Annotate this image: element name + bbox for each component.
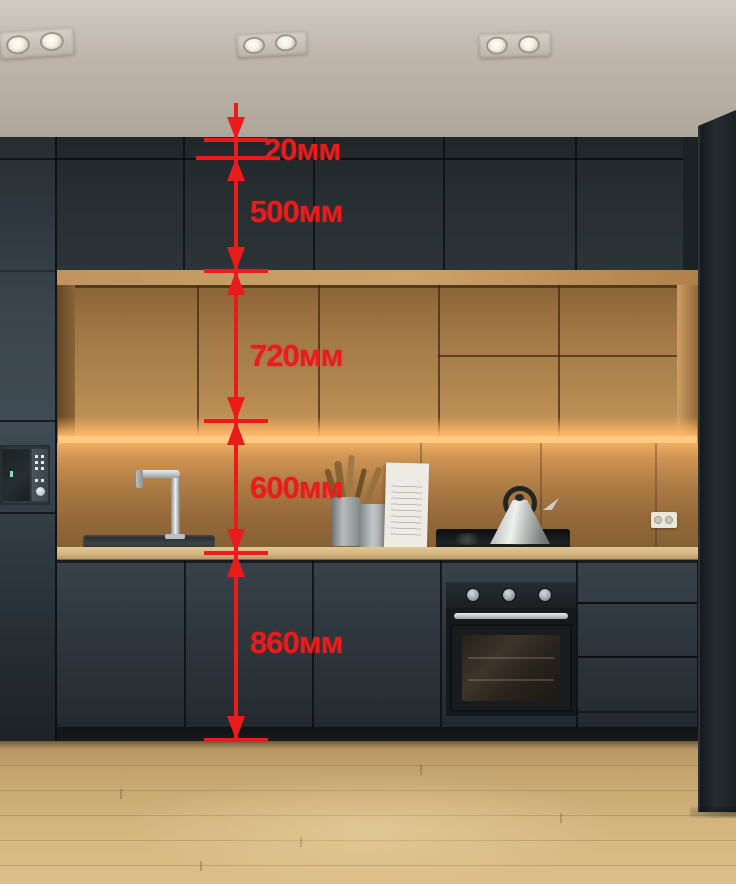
kitchen-dimensions-photo: 20мм 500мм 720мм 600мм 860мм [0, 0, 736, 884]
microwave-display [10, 471, 13, 477]
recessed-lamp [518, 35, 541, 54]
faucet [171, 476, 180, 538]
recessed-lamp [243, 36, 266, 54]
wood-floor [0, 741, 736, 884]
base-cabinets [0, 560, 736, 742]
cabinet-seam [0, 158, 55, 160]
recipe-card [384, 462, 429, 549]
counter-shadow [0, 560, 736, 563]
floor-shadow [690, 806, 736, 818]
cabinet-seam [576, 560, 578, 727]
microwave-knob [36, 487, 45, 496]
countertop [55, 547, 700, 561]
microwave-control-panel [32, 449, 48, 501]
plinth [0, 727, 736, 742]
upper-cabinets [0, 137, 736, 270]
oven-door [450, 624, 572, 712]
microwave-button [35, 479, 38, 482]
cabinet-seam [0, 158, 736, 160]
oven-knob [502, 588, 516, 602]
faucet-base [165, 534, 185, 539]
drawer-seam [578, 711, 697, 713]
dimension-label-600mm: 600мм [250, 472, 343, 503]
microwave-button [41, 467, 44, 470]
cabinet-seam [443, 137, 445, 270]
dimension-label-860mm: 860мм [250, 627, 343, 658]
cabinet-edge-highlight [698, 126, 700, 812]
ceiling-light-fixture [236, 31, 307, 58]
oven-knob [538, 588, 552, 602]
microwave-button [35, 467, 38, 470]
oven-handle [454, 613, 568, 619]
left-tall-cabinet [0, 137, 57, 743]
microwave-button [35, 455, 38, 458]
microwave-button [35, 461, 38, 464]
cabinet-seam [0, 420, 55, 422]
cabinet-seam [184, 560, 186, 727]
oven [446, 582, 576, 716]
drawer-seam [578, 656, 697, 658]
led-strip-glow [58, 416, 697, 438]
dimension-label-500mm: 500мм [250, 196, 343, 227]
cabinet-corner-panel [683, 137, 700, 270]
socket [665, 516, 673, 524]
power-outlet [651, 512, 677, 528]
recipe-card-text [390, 481, 423, 540]
recessed-lamp [39, 31, 64, 52]
microwave-button [41, 479, 44, 482]
oven-window [462, 635, 560, 701]
built-in-microwave [0, 445, 50, 505]
floor-highlight [120, 771, 620, 884]
socket [654, 516, 662, 524]
niche-lintel [55, 270, 700, 285]
floor-shadow [0, 741, 736, 749]
cabinet-seam [183, 137, 185, 270]
wall-cabinets-niche [55, 270, 700, 443]
faucet-spout [136, 470, 143, 488]
microwave-button [41, 455, 44, 458]
cabinet-seam [440, 560, 442, 727]
ceiling-light-fixture [479, 32, 552, 58]
oven-rack-reflection [468, 657, 554, 659]
oven-knob [466, 588, 480, 602]
cabinet-seam [575, 137, 577, 270]
microwave-door [2, 449, 30, 501]
plank-seam [655, 443, 657, 549]
oven-rack-reflection [468, 679, 554, 681]
recessed-lamp [486, 36, 509, 55]
recessed-lamp [5, 35, 30, 56]
led-strip [58, 436, 697, 443]
burner [450, 533, 484, 545]
ceiling-light-fixture [0, 27, 75, 59]
dimension-label-720mm: 720мм [250, 340, 343, 371]
microwave-button [41, 461, 44, 464]
kettle-lid-knob [515, 494, 524, 501]
plank-joint [120, 789, 122, 799]
cabinet-seam [0, 270, 55, 272]
oven-control-panel [446, 582, 576, 608]
recessed-lamp [274, 34, 297, 52]
cabinet-seam [0, 512, 55, 514]
drawer-seam [578, 602, 697, 604]
dimension-label-20mm: 20мм [264, 134, 340, 165]
niche-shadow [75, 285, 677, 288]
cabinet-seam [438, 355, 677, 357]
right-tall-cabinet [698, 110, 736, 812]
